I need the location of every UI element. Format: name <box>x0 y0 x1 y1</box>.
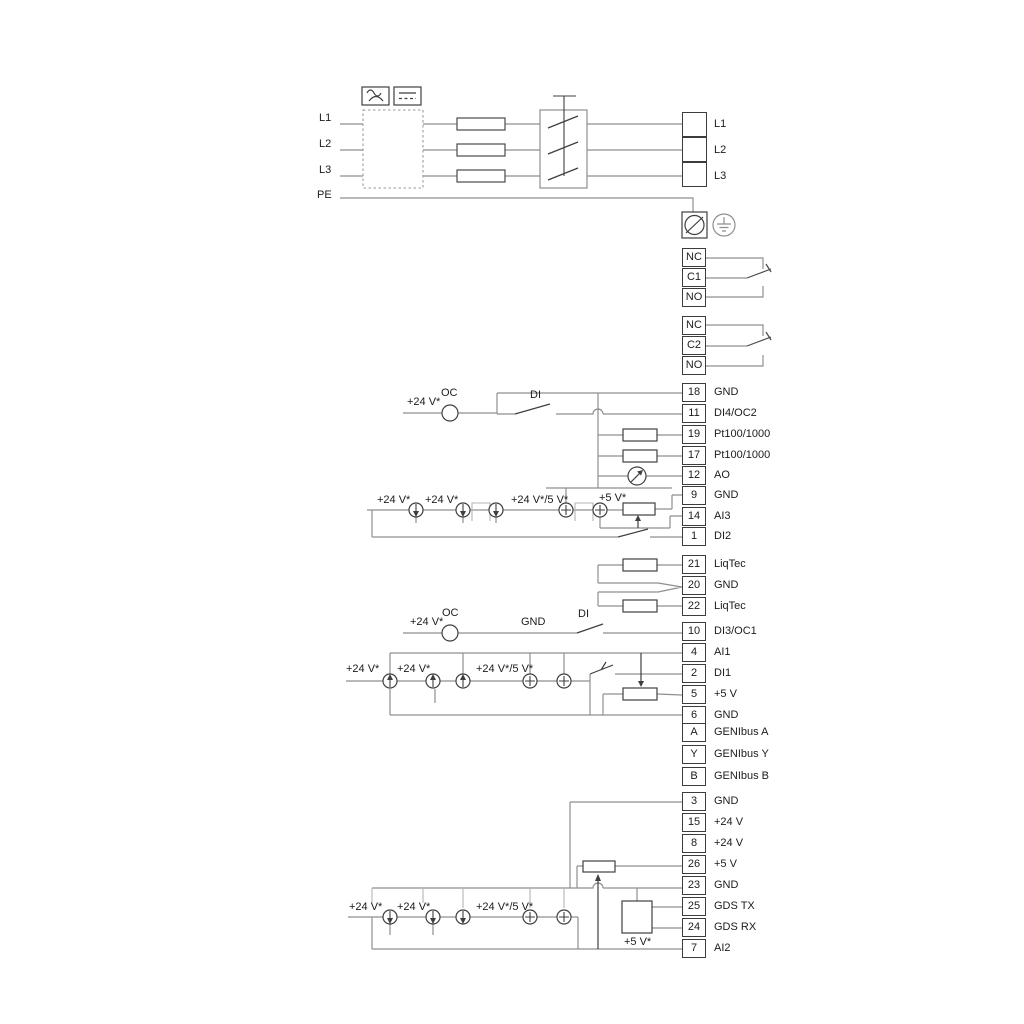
a-di-label: DI <box>530 389 541 401</box>
terminal-11: 11 <box>682 404 706 423</box>
terminal-l2-cell <box>682 137 707 162</box>
mains-pe-label: PE <box>317 189 332 201</box>
terminal-b: B <box>682 767 706 786</box>
terminal-a: A <box>682 723 706 742</box>
terminal-2: 2 <box>682 664 706 683</box>
relay2-nc-cell: NC <box>682 316 706 335</box>
terminal-5: 5 <box>682 685 706 704</box>
relay1-c1-cell: C1 <box>682 268 706 287</box>
terminal-22: 22 <box>682 597 706 616</box>
relay2-no-cell: NO <box>682 356 706 375</box>
terminal-4-label: AI1 <box>714 643 731 662</box>
terminal-3: 3 <box>682 792 706 811</box>
terminal-1-label: DI2 <box>714 527 731 546</box>
terminal-a-label: GENIbus A <box>714 723 768 742</box>
e-24v-label-2: +24 V* <box>397 663 430 675</box>
terminal-24: 24 <box>682 918 706 937</box>
text-layer: L1 L2 L3 PE L1 L2 L3 NC C1 NO NC C2 NO 1… <box>0 0 1024 1024</box>
terminal-14-label: AI3 <box>714 507 731 526</box>
mains-l2-label: L2 <box>319 138 331 150</box>
terminal-l3-cell <box>682 162 707 187</box>
terminal-25-label: GDS TX <box>714 897 755 916</box>
terminal-19: 19 <box>682 425 706 444</box>
g-24v-5v-label: +24 V*/5 V* <box>476 901 533 913</box>
g-5v-label: +5 V* <box>624 936 651 948</box>
e-24v-label-1: +24 V* <box>346 663 379 675</box>
terminal-26: 26 <box>682 855 706 874</box>
terminal-1: 1 <box>682 527 706 546</box>
terminal-l2-label: L2 <box>714 141 726 160</box>
terminal-7: 7 <box>682 939 706 958</box>
terminal-23: 23 <box>682 876 706 895</box>
terminal-2-label: DI1 <box>714 664 731 683</box>
terminal-19-label: Pt100/1000 <box>714 425 770 444</box>
terminal-11-label: DI4/OC2 <box>714 404 757 423</box>
terminal-15: 15 <box>682 813 706 832</box>
terminal-17: 17 <box>682 446 706 465</box>
terminal-8-label: +24 V <box>714 834 743 853</box>
terminal-b-label: GENIbus B <box>714 767 769 786</box>
terminal-15-label: +24 V <box>714 813 743 832</box>
e-24v-5v-label: +24 V*/5 V* <box>476 663 533 675</box>
terminal-l3-label: L3 <box>714 167 726 186</box>
wiring-diagram: L1 L2 L3 PE L1 L2 L3 NC C1 NO NC C2 NO 1… <box>0 0 1024 1024</box>
terminal-y: Y <box>682 745 706 764</box>
terminal-18-label: GND <box>714 383 738 402</box>
terminal-12: 12 <box>682 466 706 485</box>
b-24v-label-2: +24 V* <box>425 494 458 506</box>
terminal-9-label: GND <box>714 486 738 505</box>
terminal-9: 9 <box>682 486 706 505</box>
mains-l1-label: L1 <box>319 112 331 124</box>
terminal-20-label: GND <box>714 576 738 595</box>
terminal-10: 10 <box>682 622 706 641</box>
a-oc-label: OC <box>441 387 458 399</box>
terminal-14: 14 <box>682 507 706 526</box>
terminal-20: 20 <box>682 576 706 595</box>
terminal-4: 4 <box>682 643 706 662</box>
terminal-7-label: AI2 <box>714 939 731 958</box>
relay1-nc-cell: NC <box>682 248 706 267</box>
g-24v-label-1: +24 V* <box>349 901 382 913</box>
terminal-26-label: +5 V <box>714 855 737 874</box>
terminal-21: 21 <box>682 555 706 574</box>
terminal-y-label: GENIbus Y <box>714 745 769 764</box>
terminal-18: 18 <box>682 383 706 402</box>
terminal-l1-label: L1 <box>714 115 726 134</box>
d-gnd-label: GND <box>521 616 545 628</box>
b-5v-label: +5 V* <box>599 492 626 504</box>
relay1-no-cell: NO <box>682 288 706 307</box>
g-24v-label-2: +24 V* <box>397 901 430 913</box>
terminal-21-label: LiqTec <box>714 555 746 574</box>
b-24v-label-1: +24 V* <box>377 494 410 506</box>
d-24v-label: +24 V* <box>410 616 443 628</box>
relay2-c2-cell: C2 <box>682 336 706 355</box>
terminal-23-label: GND <box>714 876 738 895</box>
terminal-l1-cell <box>682 112 707 137</box>
b-24v-5v-label: +24 V*/5 V* <box>511 494 568 506</box>
terminal-10-label: DI3/OC1 <box>714 622 757 641</box>
terminal-5-label: +5 V <box>714 685 737 704</box>
terminal-24-label: GDS RX <box>714 918 756 937</box>
a-24v-label: +24 V* <box>407 396 440 408</box>
terminal-12-label: AO <box>714 466 730 485</box>
mains-l3-label: L3 <box>319 164 331 176</box>
terminal-25: 25 <box>682 897 706 916</box>
terminal-22-label: LiqTec <box>714 597 746 616</box>
d-di-label: DI <box>578 608 589 620</box>
terminal-3-label: GND <box>714 792 738 811</box>
terminal-8: 8 <box>682 834 706 853</box>
d-oc-label: OC <box>442 607 459 619</box>
terminal-17-label: Pt100/1000 <box>714 446 770 465</box>
